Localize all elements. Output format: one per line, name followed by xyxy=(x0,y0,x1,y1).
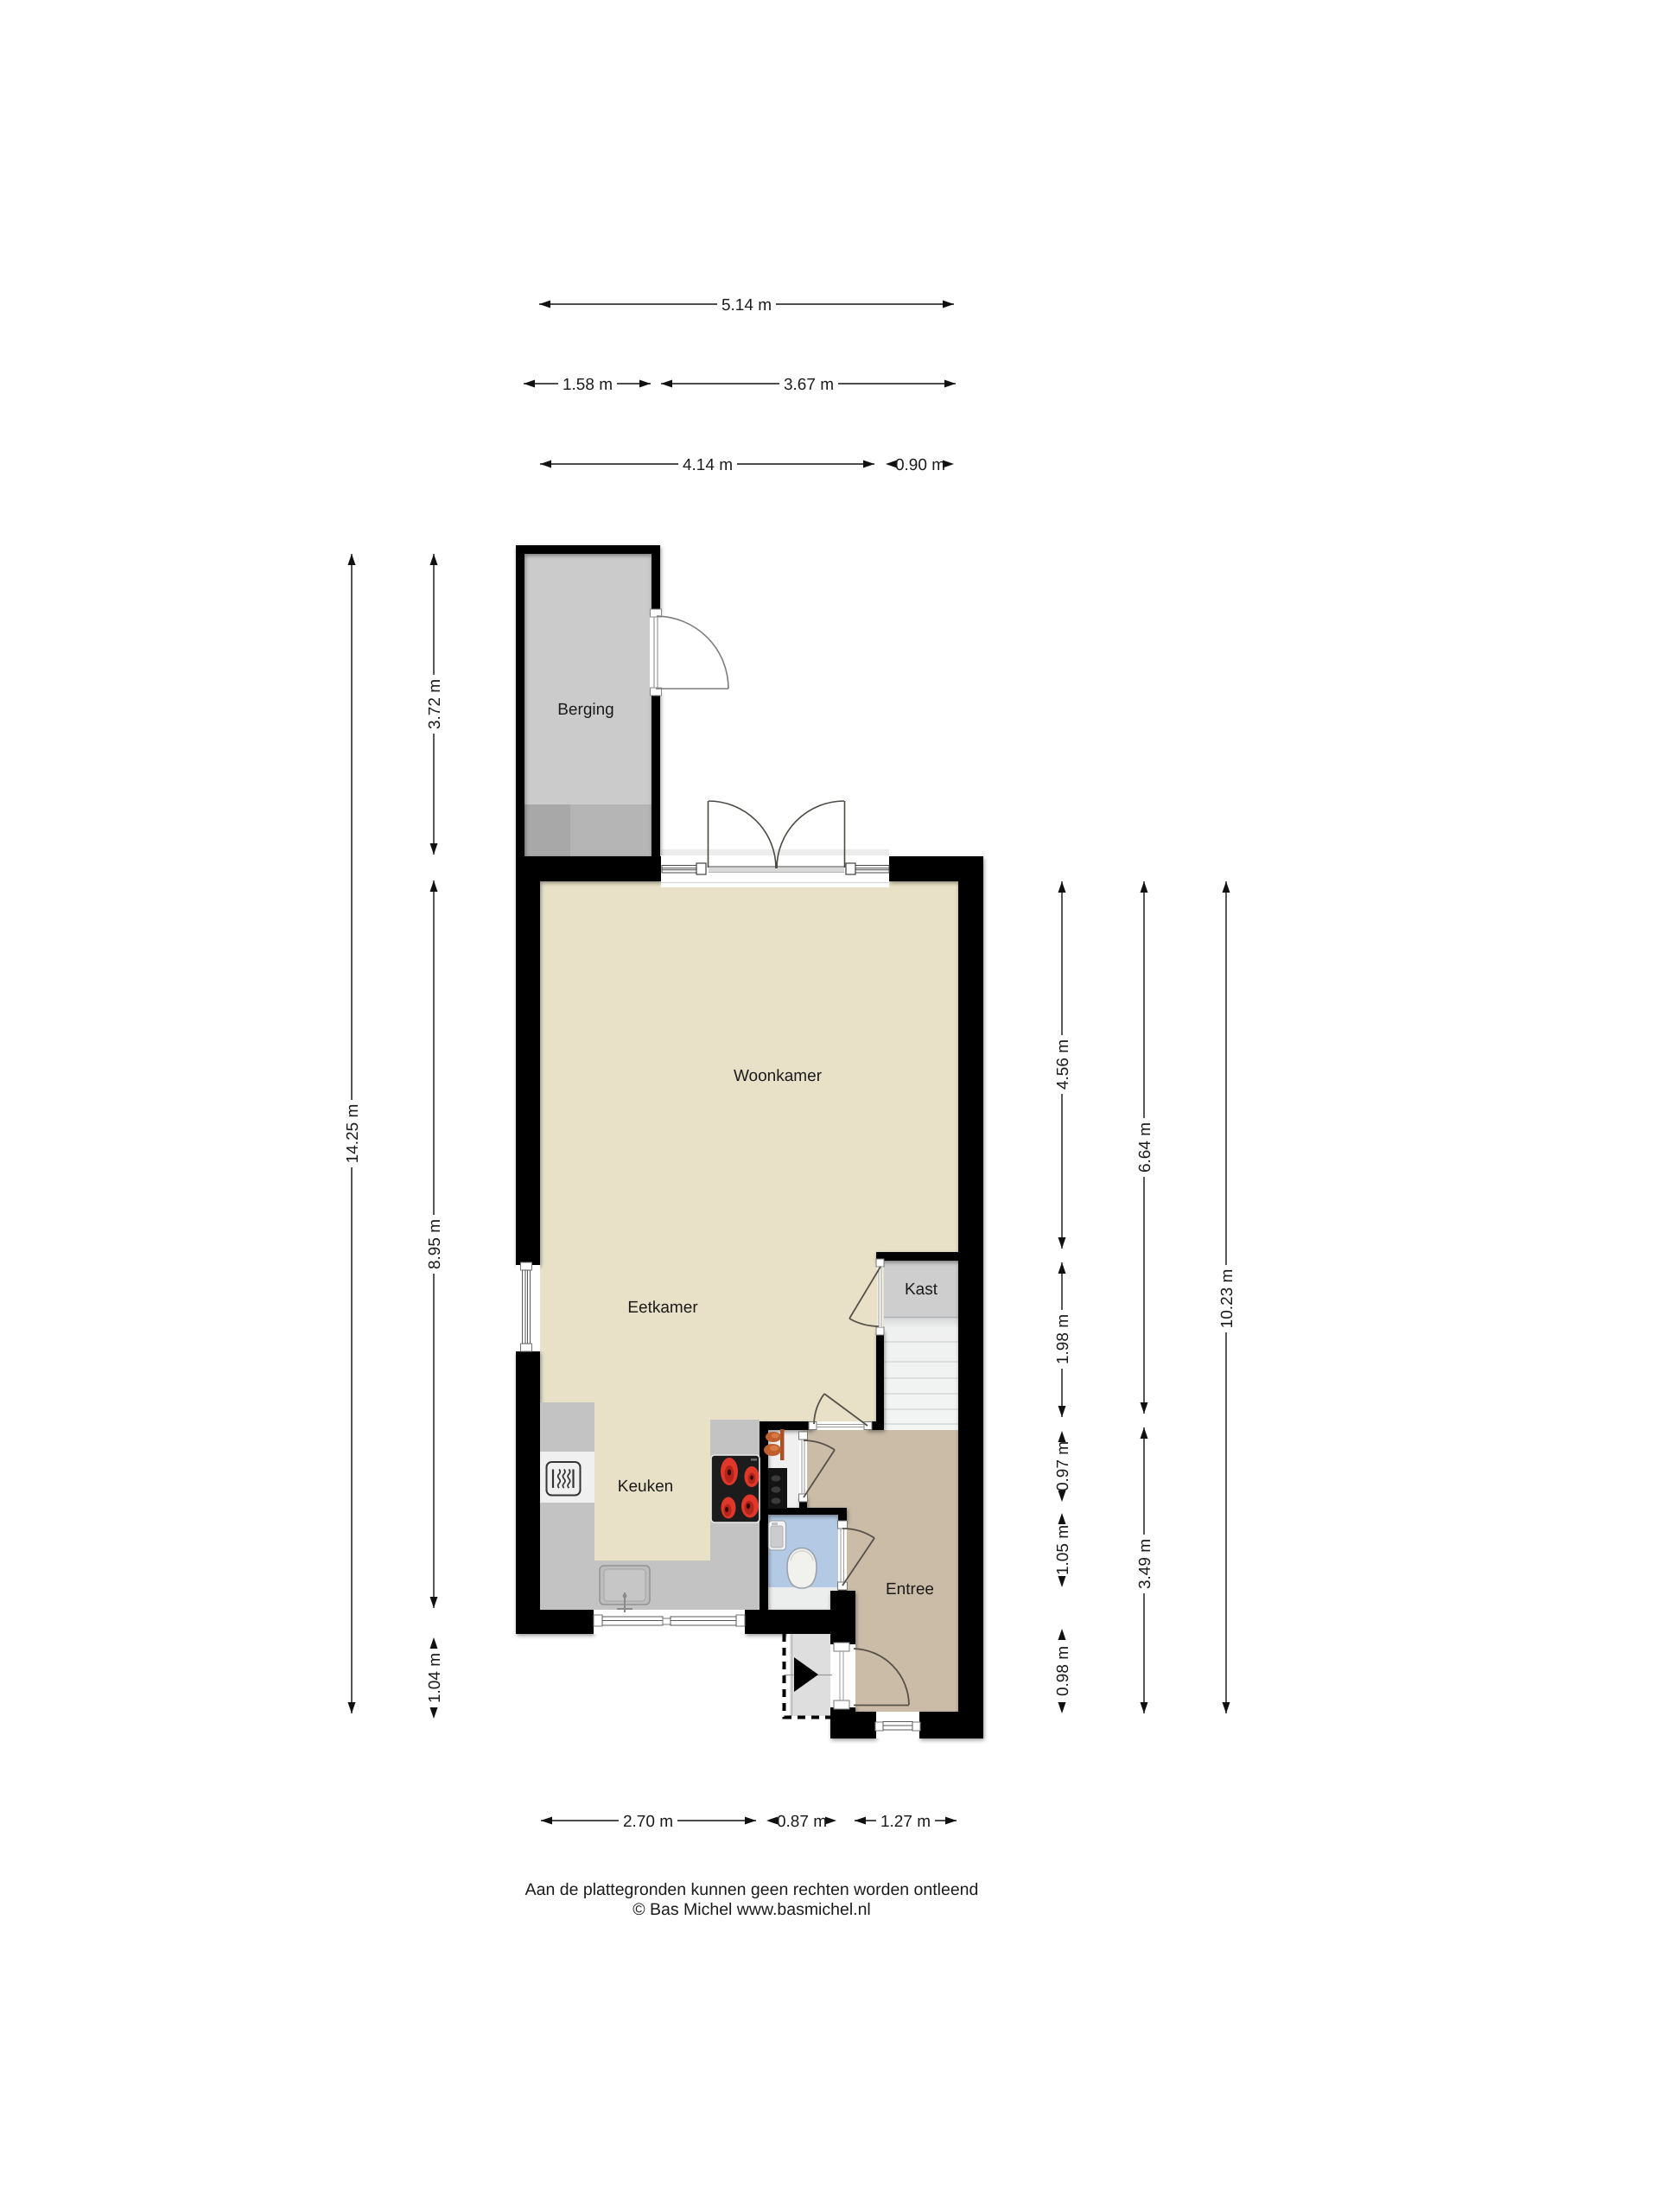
svg-text:6.64 m: 6.64 m xyxy=(1136,1122,1154,1173)
svg-text:1.98 m: 1.98 m xyxy=(1054,1314,1072,1364)
svg-text:Berging: Berging xyxy=(557,701,614,719)
svg-text:Woonkamer: Woonkamer xyxy=(734,1067,823,1085)
svg-text:Kast: Kast xyxy=(905,1281,938,1299)
svg-text:Eetkamer: Eetkamer xyxy=(627,1299,698,1317)
svg-text:1.58 m: 1.58 m xyxy=(563,376,613,394)
svg-text:Keuken: Keuken xyxy=(618,1478,673,1496)
svg-text:2.70 m: 2.70 m xyxy=(623,1813,673,1831)
svg-text:0.87 m: 0.87 m xyxy=(777,1813,827,1831)
svg-text:Entree: Entree xyxy=(886,1580,934,1599)
svg-text:3.72 m: 3.72 m xyxy=(426,679,444,729)
svg-text:3.49 m: 3.49 m xyxy=(1136,1539,1154,1589)
svg-text:0.90 m: 0.90 m xyxy=(895,456,945,474)
svg-text:5.14 m: 5.14 m xyxy=(721,296,772,315)
svg-text:8.95 m: 8.95 m xyxy=(426,1219,444,1269)
svg-text:3.67 m: 3.67 m xyxy=(784,376,834,394)
svg-text:© Bas Michel www.basmichel.nl: © Bas Michel www.basmichel.nl xyxy=(632,1900,871,1919)
svg-text:0.98 m: 0.98 m xyxy=(1054,1646,1072,1696)
svg-text:1.04 m: 1.04 m xyxy=(426,1653,444,1703)
svg-text:4.14 m: 4.14 m xyxy=(683,456,733,474)
svg-text:14.25 m: 14.25 m xyxy=(344,1104,362,1164)
svg-text:Aan de plattegronden kunnen ge: Aan de plattegronden kunnen geen rechten… xyxy=(525,1880,979,1899)
svg-text:1.27 m: 1.27 m xyxy=(880,1813,931,1831)
svg-text:1.05 m: 1.05 m xyxy=(1054,1525,1072,1575)
svg-text:10.23 m: 10.23 m xyxy=(1218,1269,1236,1329)
svg-text:0.97 m: 0.97 m xyxy=(1054,1441,1072,1491)
svg-text:4.56 m: 4.56 m xyxy=(1054,1039,1072,1090)
